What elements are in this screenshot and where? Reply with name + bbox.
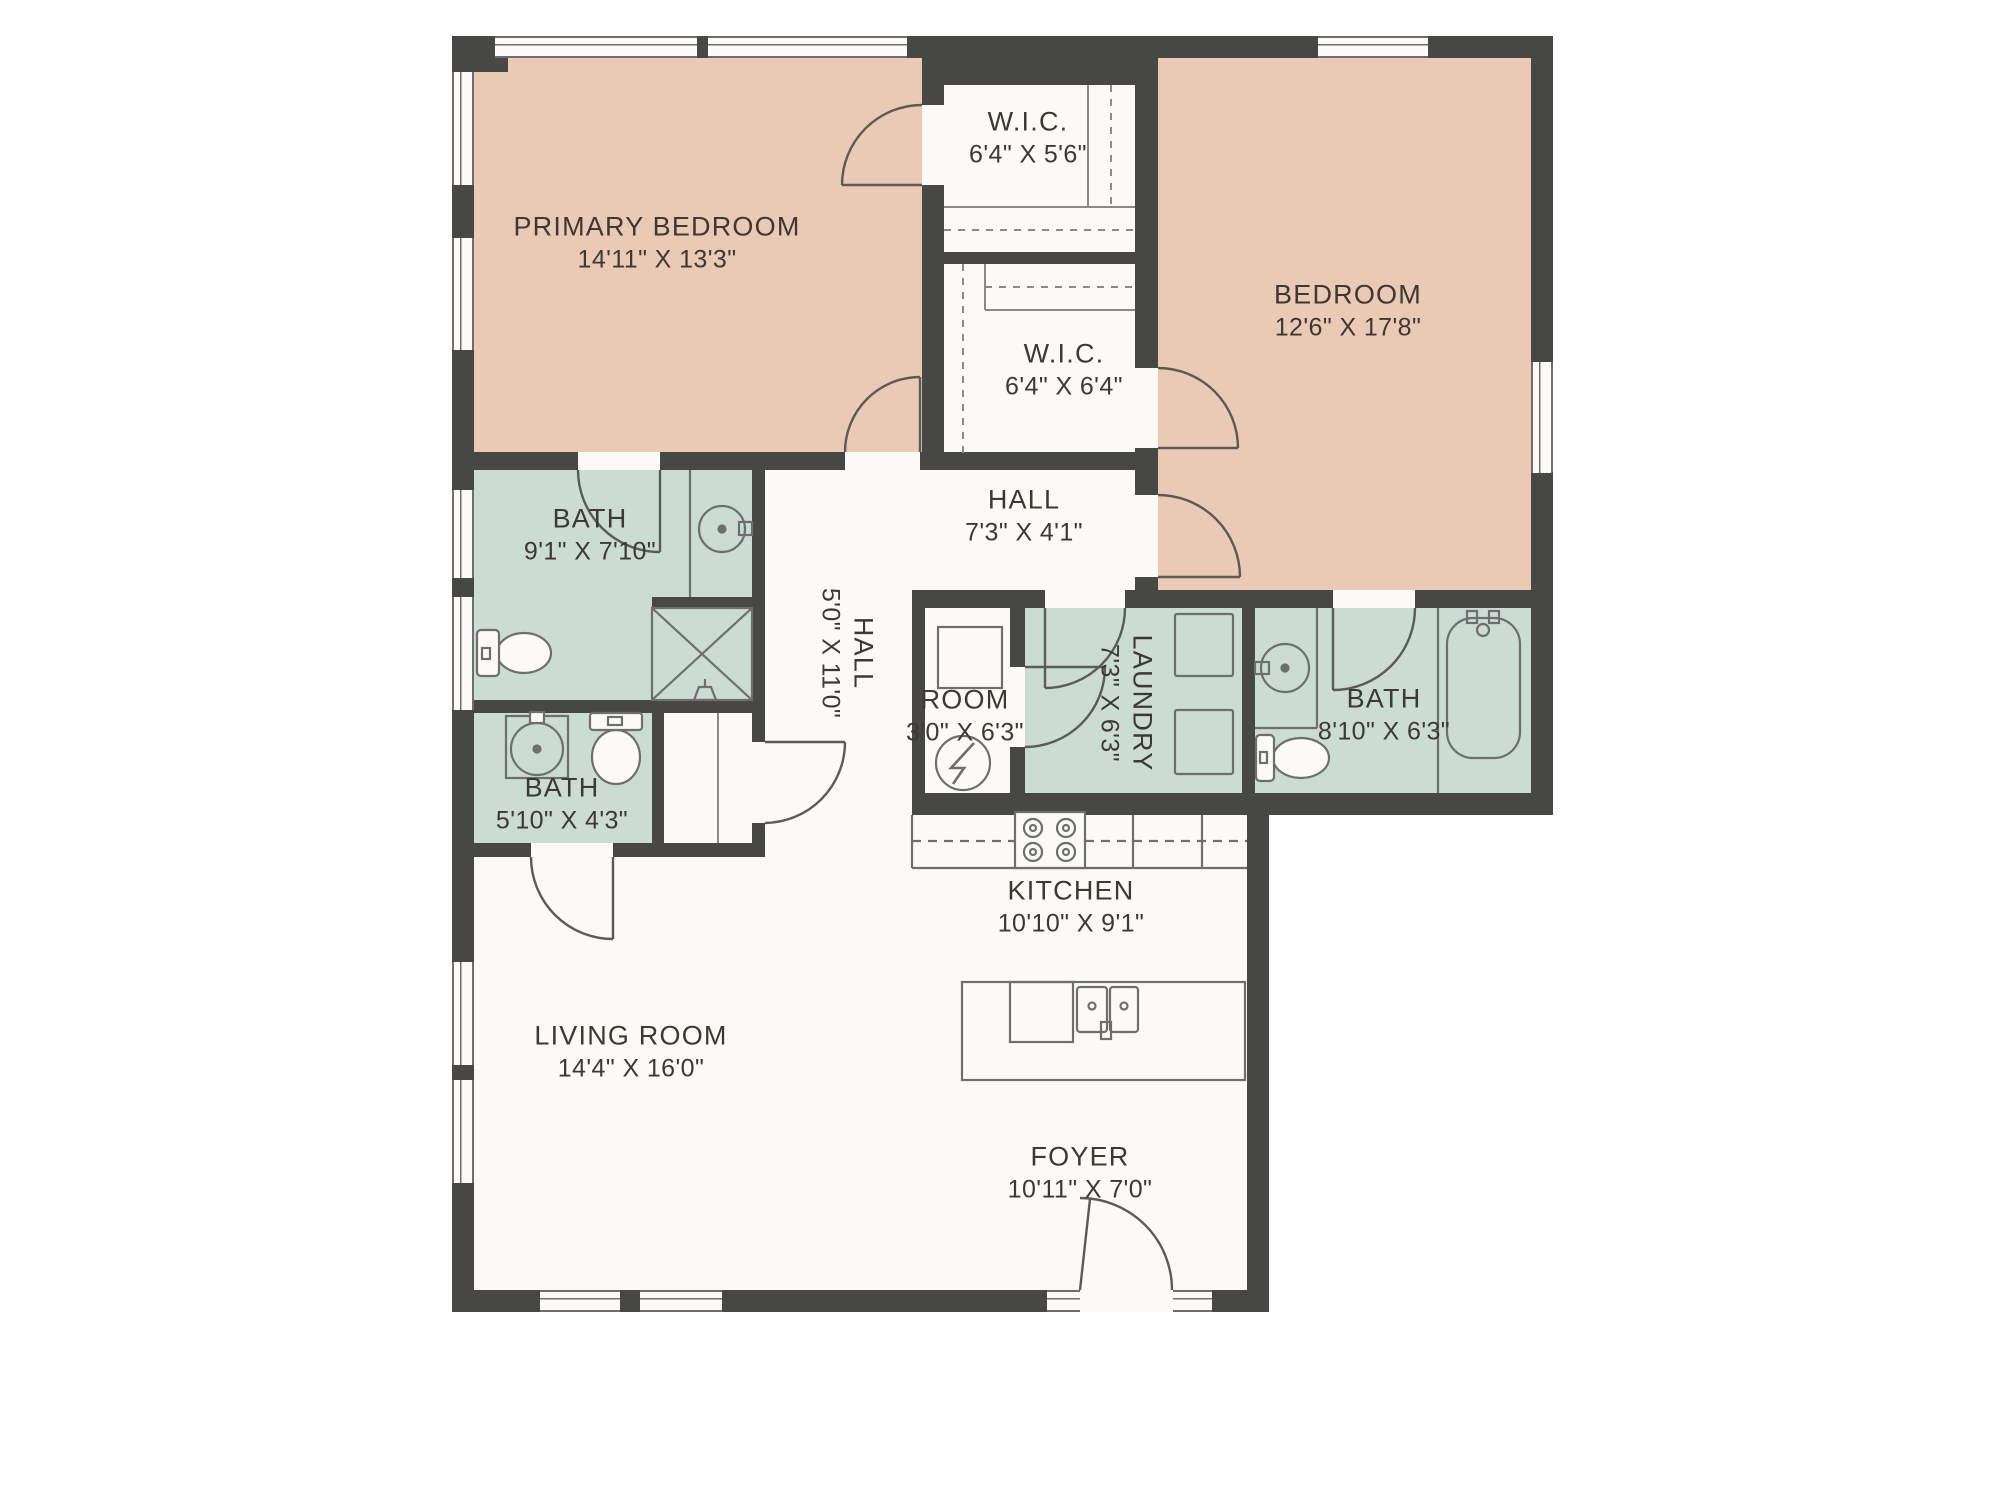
sink-icon [1255,608,1317,728]
label-foyer: FOYER 10'11" X 7'0" [1008,1141,1153,1206]
fixtures-layer [0,0,2000,1500]
label-wic-1: W.I.C. 6'4" X 5'6" [969,106,1087,171]
sink-icon [690,470,752,597]
label-wic-2: W.I.C. 6'4" X 6'4" [1005,338,1123,403]
kitchen-island [962,982,1245,1080]
label-bedroom: BEDROOM 12'6" X 17'8" [1274,279,1422,344]
label-living-room: LIVING ROOM 14'4" X 16'0" [534,1020,727,1085]
label-bath-hall: BATH 8'10" X 6'3" [1318,683,1450,748]
label-kitchen: KITCHEN 10'10" X 9'1" [998,875,1144,940]
label-laundry: LAUNDRY 7'3" X 6'3" [1094,635,1159,772]
label-room: ROOM 3'0" X 6'3" [906,684,1024,749]
washer-dryer-icon [1175,614,1233,774]
label-bath-primary: BATH 9'1" X 7'10" [524,503,656,568]
label-hall-long: HALL 5'0" X 11'0" [815,588,880,718]
shower-icon [652,608,752,700]
sink-icon [506,712,568,778]
label-hall: HALL 7'3" X 4'1" [965,484,1083,549]
kitchen-counter [912,812,1247,868]
toilet-icon [477,630,551,676]
bathtub-icon [1438,608,1520,793]
label-bath-small: BATH 5'10" X 4'3" [496,772,628,837]
floor-plan-canvas: PRIMARY BEDROOM 14'11" X 13'3" W.I.C. 6'… [0,0,2000,1500]
label-primary-bedroom: PRIMARY BEDROOM 14'11" X 13'3" [513,211,800,276]
